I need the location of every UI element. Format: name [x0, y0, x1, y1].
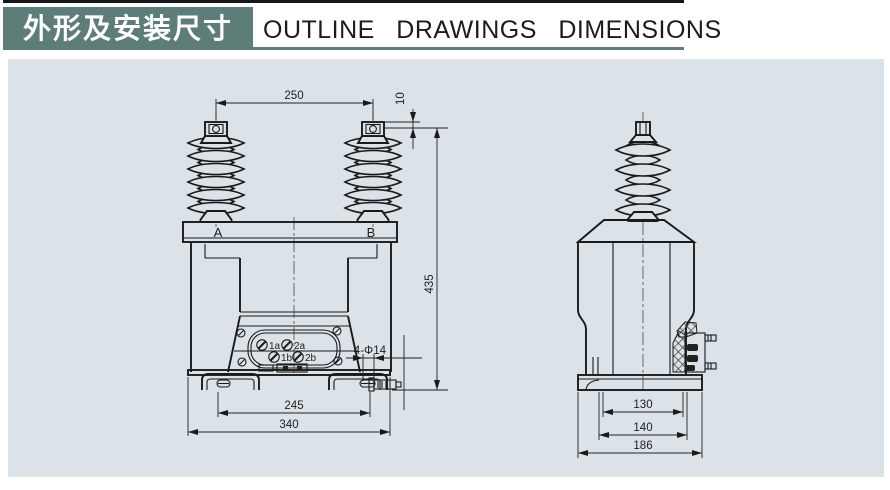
outline-drawing-svg: A B	[8, 59, 884, 477]
dim-130: 130	[603, 392, 683, 417]
side-bushing	[616, 122, 670, 221]
dim-4xphi14: 4-Φ14	[346, 335, 422, 410]
svg-text:4-Φ14: 4-Φ14	[354, 345, 387, 357]
top-plate: A B	[183, 222, 397, 242]
svg-text:140: 140	[633, 422, 652, 434]
svg-text:130: 130	[633, 399, 652, 411]
dim-250: 250	[216, 90, 373, 120]
svg-text:340: 340	[279, 419, 298, 431]
terminal-label-1a: 1a	[269, 341, 281, 352]
header-top-rule	[3, 0, 684, 3]
terminal-label-1b: 1b	[281, 353, 293, 364]
header-title-en: OUTLINE DRAWINGS DIMENSIONS	[263, 12, 722, 48]
front-view-drawing: A B	[183, 90, 448, 436]
svg-text:435: 435	[424, 274, 436, 293]
dim-245: 245	[218, 392, 370, 417]
base-and-feet	[188, 370, 401, 391]
svg-text:245: 245	[284, 400, 303, 412]
terminal-label-2a: 2a	[294, 341, 306, 352]
bushing-b	[345, 114, 401, 227]
header-underline	[3, 47, 684, 50]
drawing-panel: A B	[8, 59, 884, 477]
header-title-cn-box: 外形及安装尺寸	[3, 7, 253, 47]
terminal-cover-side	[673, 322, 716, 372]
dim-435: 435	[392, 128, 448, 390]
svg-text:186: 186	[633, 440, 652, 452]
header-title-cn: 外形及安装尺寸	[23, 7, 233, 47]
terminal-label-2b: 2b	[305, 353, 317, 364]
label-a: A	[214, 225, 223, 240]
terminal-screws: 1a 2a 1b 2b	[257, 340, 317, 364]
label-b: B	[367, 225, 376, 240]
side-view-drawing: 130 140 186	[578, 112, 716, 458]
svg-text:250: 250	[284, 90, 303, 102]
bushing-a	[188, 114, 244, 227]
svg-text:10: 10	[395, 92, 407, 105]
